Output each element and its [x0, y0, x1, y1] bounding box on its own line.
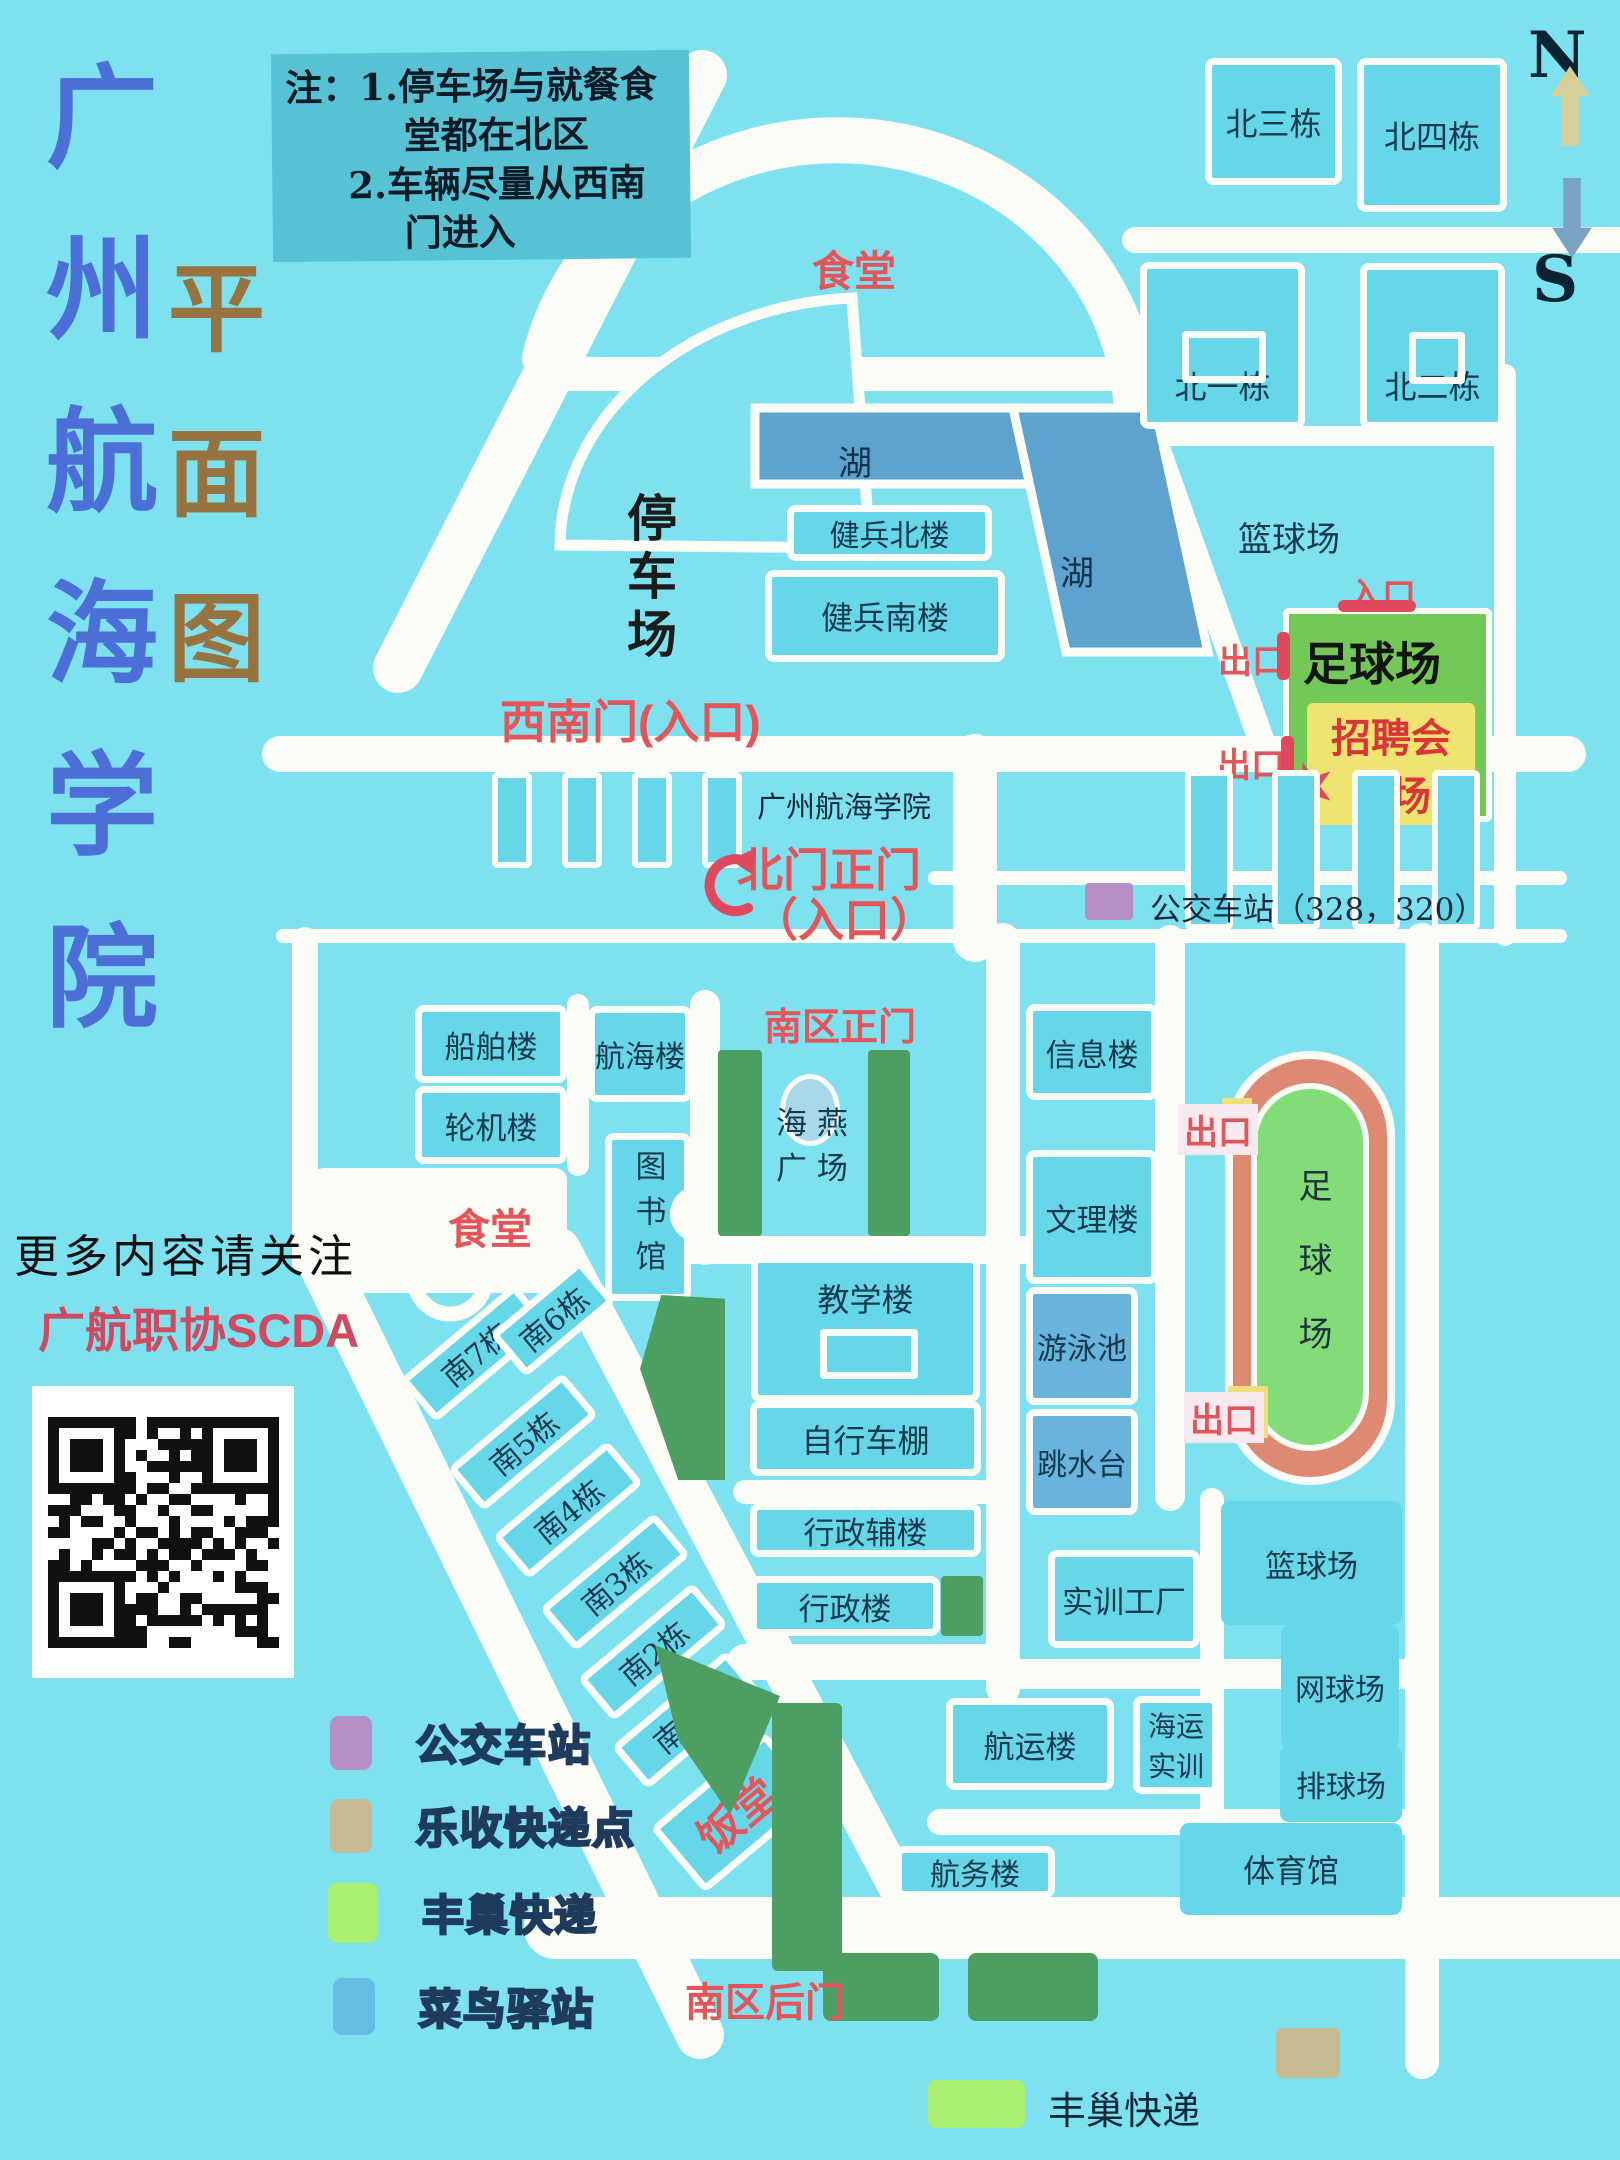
leshou-express-marker	[1276, 2028, 1340, 2078]
building-label: 教学楼	[817, 1275, 913, 1321]
north-gate-label: （入口）	[752, 884, 936, 950]
exit-label: 出口	[1178, 1104, 1258, 1155]
qr-code	[32, 1386, 294, 1678]
page-subtitle-vertical: 平 面 图	[168, 230, 265, 701]
plaza-label: 海 燕 广 场	[776, 1102, 848, 1192]
building-label: 实训工厂	[1062, 1577, 1186, 1622]
lawn-patch	[941, 1576, 983, 1636]
building-haiyun-shixun: 海运 实训	[1133, 1696, 1219, 1794]
compass-south-label: S	[1532, 242, 1578, 317]
courtyard	[1182, 331, 1266, 383]
building-library: 图书馆	[605, 1133, 691, 1301]
note-line: 堂都在北区	[286, 109, 690, 162]
building-label: 健兵北楼	[830, 511, 950, 555]
subtitle-char: 平	[168, 230, 265, 371]
building-xinxi: 信息楼	[1026, 1004, 1158, 1100]
title-char: 海	[46, 544, 158, 706]
building-lunji: 轮机楼	[415, 1086, 567, 1164]
haiyan-plaza: 海 燕 广 场	[718, 1050, 910, 1236]
subtitle-char: 图	[168, 560, 265, 701]
court-label: 网球场	[1295, 1665, 1385, 1709]
map-note: 注：1.停车场与就餐食 堂都在北区 2.车辆尽量从西南 门进入	[271, 50, 691, 262]
promo-line2: 广航职协SCDA	[38, 1292, 359, 1361]
legend-label: 公交车站	[416, 1712, 592, 1773]
title-char: 州	[46, 200, 158, 362]
page-title-vertical: 广 州 航 海 学 院	[46, 28, 158, 1050]
court-label: 体育馆	[1243, 1846, 1339, 1892]
gate-pillar	[562, 772, 602, 868]
south-back-gate-label: 南区后门	[685, 1970, 845, 2028]
building-north-1: 北一栋	[1140, 262, 1305, 429]
building-label: 行政楼	[799, 1584, 892, 1629]
building-jianbing-south: 健兵南楼	[765, 570, 1005, 662]
building-hanghai: 航海楼	[588, 1006, 692, 1102]
building-chuanbo: 船舶楼	[415, 1005, 567, 1083]
pool-label: 游泳池	[1037, 1324, 1127, 1368]
building-xingzheng: 行政楼	[750, 1576, 940, 1636]
building-label: 北四栋	[1384, 112, 1480, 158]
title-char: 学	[46, 716, 158, 878]
north-football-label: 足球场	[1303, 628, 1441, 694]
parking-lot-label: 停车场	[612, 492, 684, 666]
note-line: 注：1.停车场与就餐食	[285, 60, 689, 113]
building-shixun: 实训工厂	[1048, 1550, 1200, 1648]
legend-label: 菜鸟驿站	[419, 1976, 595, 2037]
court-label: 排球场	[1296, 1762, 1386, 1806]
qr-grid	[48, 1417, 279, 1648]
southwest-gate-label: 西南门(入口)	[500, 686, 761, 752]
legend-item-leshou: 乐收快递点	[330, 1795, 636, 1856]
north-canteen-label: 食堂	[812, 238, 896, 299]
south-main-gate-label: 南区正门	[764, 996, 916, 1051]
courtyard	[1409, 332, 1465, 384]
subtitle-char: 面	[168, 395, 265, 536]
building-north-3: 北三栋	[1205, 58, 1342, 185]
bus-stop-swatch	[330, 1716, 372, 1770]
plaza-label-line: 海 燕	[776, 1102, 848, 1147]
school-name-small-label: 广州航海学院	[757, 784, 931, 826]
south-canteen-label: 食堂	[448, 1196, 532, 1257]
legend-label: 乐收快递点	[416, 1795, 636, 1856]
building-label: 图书馆	[626, 1150, 671, 1285]
building-label: 船舶楼	[445, 1022, 538, 1067]
lake-label: 湖	[1060, 546, 1094, 595]
promo-line1: 更多内容请关注	[14, 1220, 357, 1285]
building-label: 健兵南楼	[821, 593, 949, 639]
building-jianbing-north: 健兵北楼	[787, 505, 992, 561]
building-label: 自行车棚	[801, 1416, 929, 1462]
plaza-lawn	[868, 1050, 910, 1236]
building-label: 信息楼	[1046, 1030, 1139, 1075]
building-label: 行政辅楼	[804, 1508, 928, 1553]
fengchao-bottom-label: 丰巢快递	[1048, 2080, 1200, 2135]
campus-map: 广 州 航 海 学 院 平 面 图 注：1.停车场与就餐食 堂都在北区 2.车辆…	[0, 0, 1620, 2160]
legend-item-bus-stop: 公交车站	[330, 1712, 592, 1773]
bike-shed: 自行车棚	[750, 1401, 981, 1476]
title-char: 广	[46, 28, 158, 190]
legend-label: 丰巢快递	[422, 1882, 598, 1943]
building-jiaoxue: 教学楼	[751, 1256, 980, 1402]
legend-item-cainiao: 菜鸟驿站	[333, 1976, 595, 2037]
exit-label: 出口	[1218, 634, 1286, 683]
title-char: 航	[46, 372, 158, 534]
south-basketball-court: 篮球场	[1221, 1501, 1402, 1625]
building-xingzhengfu: 行政辅楼	[750, 1503, 981, 1557]
title-char: 院	[46, 888, 158, 1050]
job-fair-label: 招聘会	[1331, 706, 1451, 764]
fengchao-marker	[928, 2080, 1025, 2128]
note-line: 门进入	[287, 206, 691, 259]
swimming-pool: 游泳池	[1026, 1287, 1138, 1405]
curved-arrow-icon	[690, 846, 760, 926]
building-label: 航海楼	[595, 1032, 685, 1076]
bus-stop-marker	[1085, 883, 1133, 920]
building-label: 航务楼	[930, 1850, 1020, 1894]
diving-label: 跳水台	[1037, 1440, 1127, 1484]
volleyball-court: 排球场	[1280, 1746, 1402, 1822]
lawn-strip	[772, 1703, 842, 1971]
building-wenli: 文理楼	[1026, 1150, 1158, 1284]
plaza-lawn	[718, 1050, 762, 1236]
legend-item-fengchao: 丰巢快递	[328, 1882, 598, 1943]
cainiao-swatch	[333, 1978, 375, 2035]
exit-label: 出口	[1184, 1392, 1264, 1443]
entrance-mark	[1338, 600, 1416, 612]
building-label: 实训	[1148, 1745, 1204, 1785]
courtyard	[820, 1329, 918, 1379]
bus-stop-label: 公交车站（328，320）	[1150, 884, 1485, 929]
building-label: 文理楼	[1046, 1195, 1139, 1240]
lake-label: 湖	[838, 436, 872, 485]
building-north-4: 北四栋	[1357, 58, 1507, 212]
court-label: 篮球场	[1265, 1541, 1358, 1586]
gate-pillar	[632, 772, 672, 868]
plaza-label-line: 广 场	[776, 1147, 848, 1192]
note-line: 2.车辆尽量从西南	[286, 157, 690, 210]
north-basketball-label: 篮球场	[1238, 512, 1340, 561]
building-hangyun: 航运楼	[946, 1698, 1114, 1790]
tennis-court: 网球场	[1281, 1625, 1399, 1749]
gate-pillar	[492, 772, 532, 868]
fengchao-swatch	[328, 1883, 378, 1943]
building-label: 海运	[1148, 1705, 1204, 1745]
building-label: 轮机楼	[445, 1103, 538, 1148]
lawn-block	[968, 1953, 1098, 2021]
building-north-2: 北二栋	[1360, 263, 1505, 429]
building-hangwu: 航务楼	[895, 1846, 1055, 1898]
stadium-label: 足球场	[1288, 1168, 1337, 1390]
diving-platform: 跳水台	[1026, 1409, 1138, 1515]
exit-mark	[1277, 632, 1290, 680]
building-label: 北三栋	[1225, 99, 1321, 145]
leshou-swatch	[330, 1799, 372, 1853]
building-label: 航运楼	[984, 1722, 1077, 1767]
gymnasium: 体育馆	[1180, 1823, 1402, 1915]
